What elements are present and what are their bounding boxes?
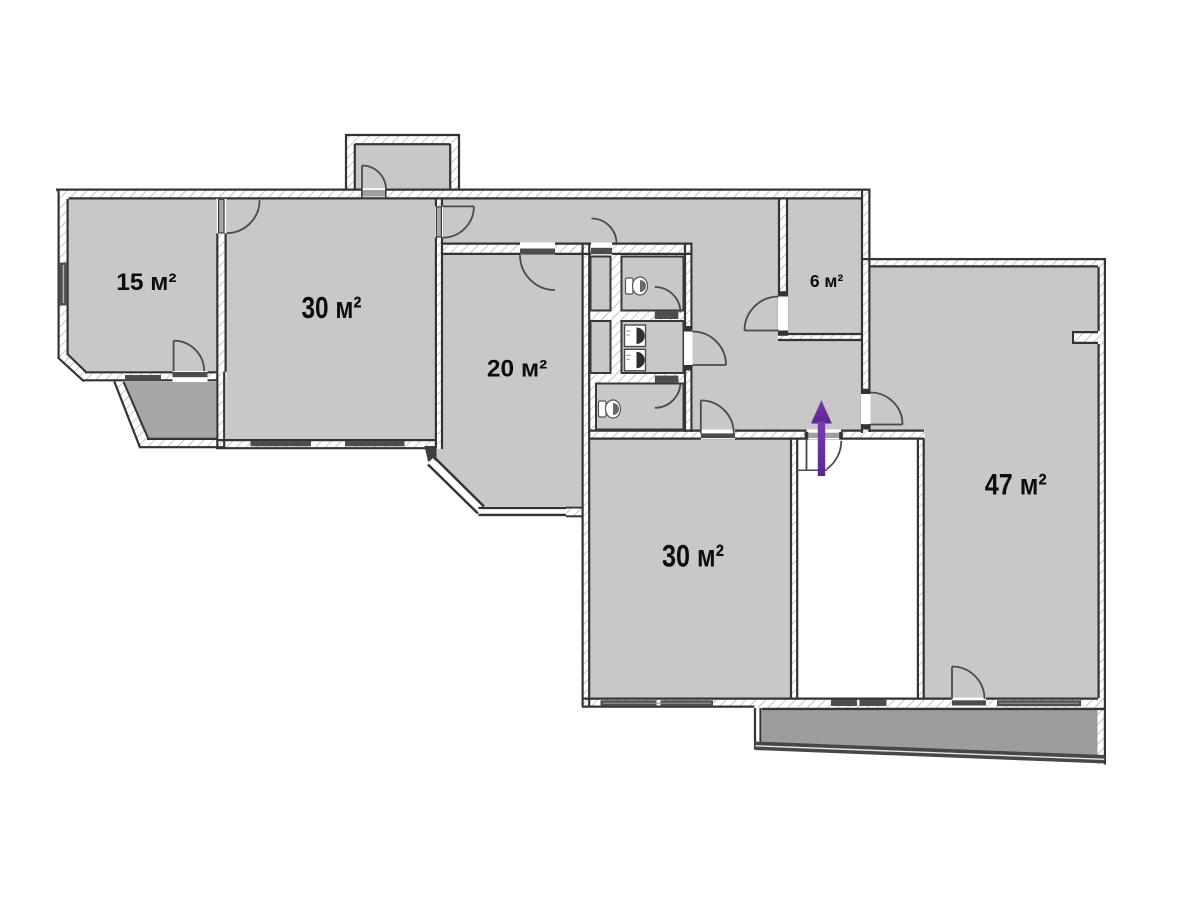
svg-text:30 м²: 30 м² xyxy=(301,291,361,325)
svg-text:15 м²: 15 м² xyxy=(116,269,176,296)
svg-text:20 м²: 20 м² xyxy=(487,356,547,383)
svg-text:30 м²: 30 м² xyxy=(662,539,724,574)
svg-text:47 м²: 47 м² xyxy=(985,467,1047,501)
svg-text:6 м²: 6 м² xyxy=(810,271,844,291)
